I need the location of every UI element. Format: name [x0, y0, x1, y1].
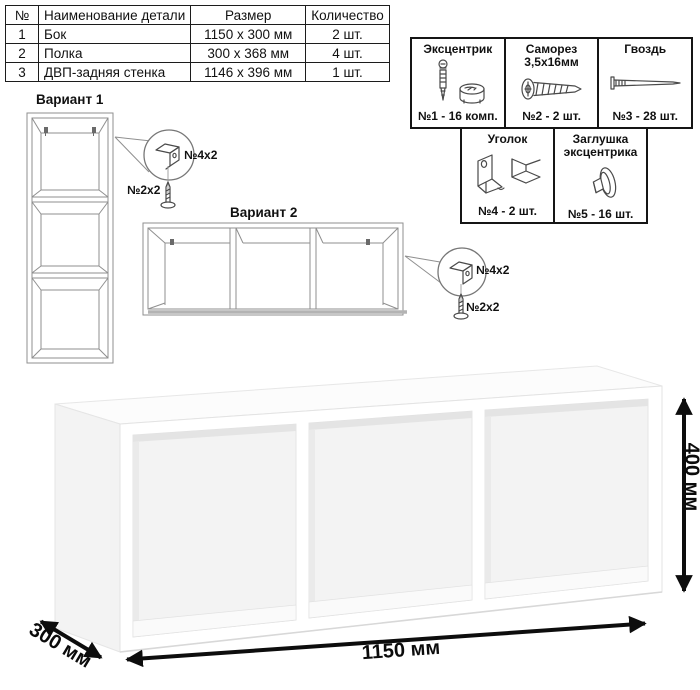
- variant1-drawing: [27, 113, 194, 363]
- hardware-title: Саморез: [526, 42, 578, 56]
- table-row: 3 ДВП-задняя стенка 1146 х 396 мм 1 шт.: [6, 63, 390, 82]
- variant1-label: Вариант 1: [36, 92, 103, 107]
- shelf-3d-drawing: [55, 366, 662, 652]
- hardware-title: Заглушка: [573, 132, 629, 146]
- part-qty: 1 шт.: [306, 63, 390, 82]
- part-size: 1150 х 300 мм: [191, 25, 306, 44]
- hardware-count: №3 - 28 шт.: [612, 109, 678, 127]
- corner-bracket-icon: [468, 149, 548, 201]
- eccentric-cap-icon: [566, 159, 636, 207]
- header-size: Размер: [191, 6, 306, 25]
- header-name: Наименование детали: [39, 6, 191, 25]
- hardware-subtitle: 3,5х16мм: [524, 55, 578, 69]
- assembly-instruction-sheet: № Наименование детали Размер Количество …: [0, 0, 700, 690]
- hardware-box-row1: Эксцентрик №1 - 16 комп. Саморез: [410, 37, 693, 129]
- hardware-cell-cap: Заглушка эксцентрика №5 - 16 шт.: [553, 129, 646, 222]
- variant1-screw-qty-label: №2х2: [127, 183, 160, 197]
- variant1-bracket-qty-label: №4х2: [184, 148, 217, 162]
- hardware-cell-nail: Гвоздь №3 - 28 шт.: [597, 39, 691, 127]
- part-num: 2: [6, 44, 39, 63]
- part-size: 300 х 368 мм: [191, 44, 306, 63]
- hardware-count: №4 - 2 шт.: [478, 204, 537, 222]
- variant2-bracket-qty-label: №4х2: [476, 263, 509, 277]
- shelf-compartment: [485, 399, 648, 599]
- nail-icon: [605, 70, 685, 96]
- header-num: №: [6, 6, 39, 25]
- part-size: 1146 х 396 мм: [191, 63, 306, 82]
- part-num: 3: [6, 63, 39, 82]
- screw-icon: [513, 71, 591, 107]
- hardware-subtitle: эксцентрика: [564, 145, 638, 159]
- header-qty: Количество: [306, 6, 390, 25]
- hardware-count: №5 - 16 шт.: [568, 207, 634, 225]
- table-row: 2 Полка 300 х 368 мм 4 шт.: [6, 44, 390, 63]
- variant2-label: Вариант 2: [230, 205, 297, 220]
- hardware-cell-eccentric: Эксцентрик №1 - 16 комп.: [412, 39, 504, 127]
- variant2-screw-qty-label: №2х2: [466, 300, 499, 314]
- hardware-title: Эксцентрик: [423, 42, 492, 56]
- hardware-title: Гвоздь: [624, 42, 666, 56]
- part-name: Полка: [39, 44, 191, 63]
- table-row: 1 Бок 1150 х 300 мм 2 шт.: [6, 25, 390, 44]
- hardware-cell-screw: Саморез 3,5х16мм №2 - 2 шт.: [504, 39, 598, 127]
- wall-bracket-mark-icon: [170, 239, 370, 245]
- parts-table: № Наименование детали Размер Количество …: [5, 5, 390, 82]
- part-qty: 4 шт.: [306, 44, 390, 63]
- wall-bracket-mark-icon: [44, 127, 96, 136]
- hardware-title: Уголок: [488, 132, 528, 146]
- hardware-cell-bracket: Уголок №4 - 2 шт.: [462, 129, 553, 222]
- part-qty: 2 шт.: [306, 25, 390, 44]
- shelf-compartment: [309, 411, 472, 618]
- cam-lock-icon: [419, 58, 497, 108]
- height-dimension-label: 400 мм: [680, 443, 700, 512]
- part-name: ДВП-задняя стенка: [39, 63, 191, 82]
- part-name: Бок: [39, 25, 191, 44]
- hardware-box-row2: Уголок №4 - 2 шт. Заглушка эксцентрика: [460, 129, 648, 224]
- variant2-drawing: [143, 223, 486, 319]
- hardware-count: №1 - 16 комп.: [418, 109, 498, 127]
- part-num: 1: [6, 25, 39, 44]
- hardware-count: №2 - 2 шт.: [522, 109, 581, 127]
- parts-table-header-row: № Наименование детали Размер Количество: [6, 6, 390, 25]
- shelf-compartment: [133, 424, 296, 637]
